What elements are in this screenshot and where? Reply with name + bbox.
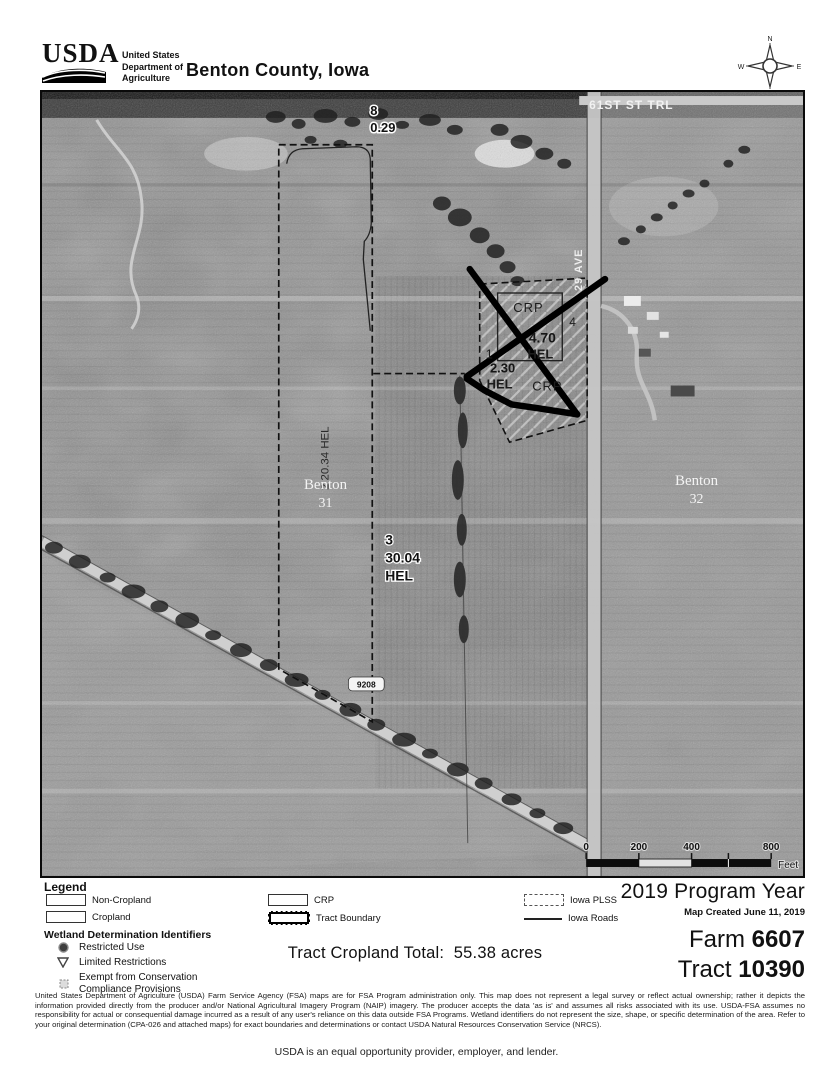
compass-w-label: W bbox=[738, 64, 745, 71]
usda-logo: USDA bbox=[42, 42, 112, 88]
usda-swoosh-icon bbox=[42, 65, 106, 83]
field3-acres-label: 30.04 bbox=[385, 550, 420, 566]
iowa-roads-line-icon bbox=[524, 918, 562, 920]
farm-number-line: Farm 6607 bbox=[621, 926, 805, 954]
wetland-identifiers-title: Wetland Determination Identifiers bbox=[44, 929, 211, 941]
legend-item-iowa-roads: Iowa Roads bbox=[524, 913, 618, 924]
program-year: 2019 Program Year bbox=[621, 880, 805, 904]
non-cropland-swatch-icon bbox=[46, 894, 86, 906]
field3-type-label: HEL bbox=[385, 567, 413, 583]
aerial-map-canvas: 61ST ST TRL 29 AVE 8 0.29 2 20.34 HEL Be… bbox=[42, 92, 803, 876]
field1-type-label: HEL bbox=[487, 377, 513, 392]
scale-tick-0: 0 bbox=[583, 842, 589, 853]
field1-id-label: 1 bbox=[486, 347, 493, 362]
scale-unit-label: Feet bbox=[778, 860, 798, 871]
road-shield-label: 9208 bbox=[357, 679, 376, 689]
street-label-right: 29 AVE bbox=[573, 249, 585, 291]
tract-number: 10390 bbox=[738, 956, 805, 983]
crp-bottom-label: CRP bbox=[532, 378, 562, 393]
field4-type-label: HEL bbox=[527, 347, 553, 362]
wetland-item-limited-restrictions: Limited Restrictions bbox=[57, 957, 166, 968]
crp-swatch-icon bbox=[268, 894, 308, 906]
fsa-map-page: USDA United States Department of Agricul… bbox=[0, 0, 833, 1080]
tract-boundary-swatch-icon bbox=[268, 911, 310, 925]
field4-id-label: 4 bbox=[569, 315, 576, 329]
road-shield: 9208 bbox=[348, 677, 384, 691]
legend-item-tract-boundary: Tract Boundary bbox=[268, 911, 381, 925]
usda-department-text: United States Department of Agriculture bbox=[122, 50, 183, 85]
legend-item-cropland: Cropland bbox=[46, 911, 131, 923]
field1-acres-label: 2.30 bbox=[490, 361, 515, 376]
tract-cropland-total: Tract Cropland Total: 55.38 acres bbox=[190, 944, 640, 963]
legend-item-non-cropland: Non-Cropland bbox=[46, 894, 151, 906]
crp-top-label: CRP bbox=[513, 300, 543, 315]
field4-acres-label: 4.70 bbox=[529, 330, 556, 346]
restricted-use-icon bbox=[58, 942, 69, 953]
iowa-plss-swatch-icon bbox=[524, 894, 564, 906]
tract-number-line: Tract 10390 bbox=[621, 956, 805, 984]
farm-number: 6607 bbox=[752, 926, 805, 953]
field8-acres-label: 0.29 bbox=[370, 120, 395, 135]
scale-tick-200: 200 bbox=[631, 842, 648, 853]
page-title: Benton County, Iowa bbox=[186, 60, 369, 81]
cropland-swatch-icon bbox=[46, 911, 86, 923]
legend-item-crp: CRP bbox=[268, 894, 334, 906]
field3-id-label: 3 bbox=[385, 532, 393, 548]
legend-item-iowa-plss: Iowa PLSS bbox=[524, 894, 617, 906]
section31-num-label: 31 bbox=[319, 496, 333, 511]
wetland-item-restricted-use: Restricted Use bbox=[58, 942, 145, 953]
cropland-total-value: 55.38 acres bbox=[454, 944, 542, 962]
compass-e-label: E bbox=[797, 64, 802, 71]
exempt-icon bbox=[59, 979, 69, 989]
footer-text: USDA is an equal opportunity provider, e… bbox=[0, 1046, 833, 1058]
scale-tick-800: 800 bbox=[763, 842, 780, 853]
compass-n-label: N bbox=[767, 36, 772, 43]
legend-title: Legend bbox=[44, 880, 87, 894]
limited-restrictions-icon bbox=[57, 957, 69, 968]
map-info-block: 2019 Program Year Map Created June 11, 2… bbox=[621, 880, 805, 984]
section31-name-label: Benton bbox=[304, 477, 348, 493]
section32-name-label: Benton bbox=[675, 473, 719, 489]
section32-num-label: 32 bbox=[690, 492, 704, 507]
field8-id-label: 8 bbox=[370, 103, 377, 118]
aerial-map: 61ST ST TRL 29 AVE 8 0.29 2 20.34 HEL Be… bbox=[40, 90, 805, 878]
disclaimer-text: United States Department of Agriculture … bbox=[35, 991, 805, 1030]
scale-tick-400: 400 bbox=[683, 842, 700, 853]
street-label-top: 61ST ST TRL bbox=[589, 98, 673, 112]
usda-wordmark: USDA bbox=[42, 42, 112, 65]
map-created-date: Map Created June 11, 2019 bbox=[621, 907, 805, 918]
